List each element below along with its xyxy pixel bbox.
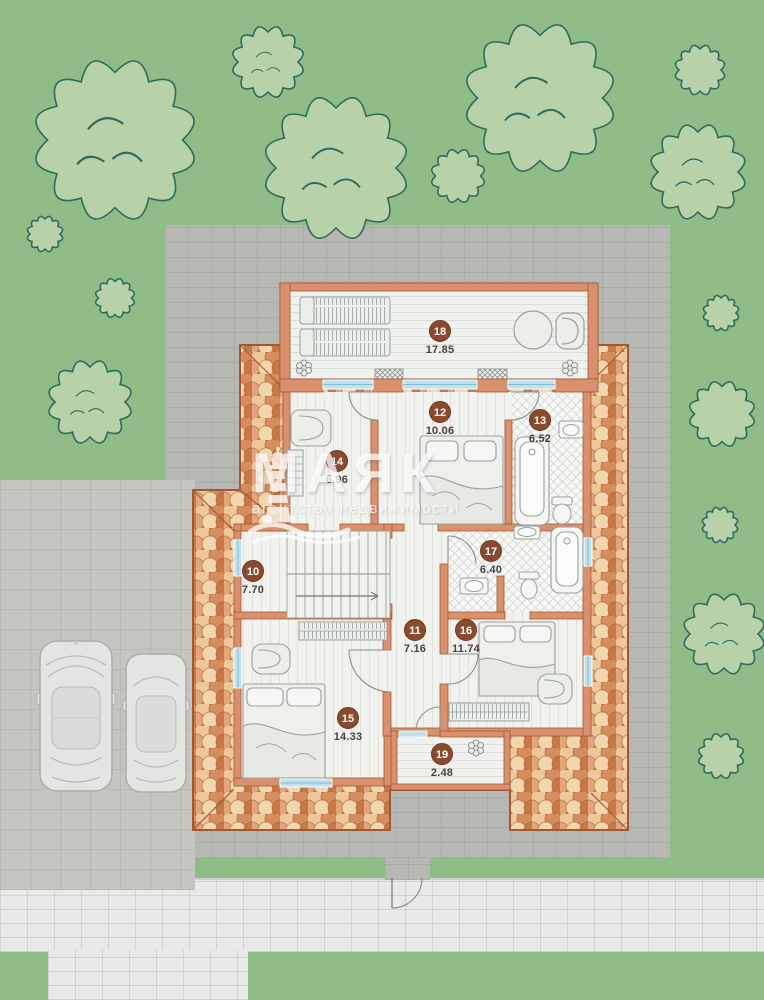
site-plan: 18 17.85 12 10.06 13 6.52 14 6.96 10 7.7… [0,0,764,1000]
plan-graphics [0,0,764,1000]
room-number-badge: 15 [337,707,359,729]
room-area: 2.48 [407,767,477,779]
toilet [552,497,572,524]
room-label-19: 19 2.48 [407,743,477,779]
sink [514,526,540,539]
car-large [37,641,115,791]
room-number-badge: 11 [404,619,426,641]
room-number-badge: 16 [455,619,477,641]
gate-door [392,878,422,908]
room-area: 6.52 [505,433,575,445]
round-table [514,311,552,349]
room-area: 7.70 [218,584,288,596]
car-small [123,654,189,792]
bathtub [551,527,583,593]
terrace-chair [556,313,584,349]
room-number-badge: 13 [529,409,551,431]
room-label-15: 15 14.33 [313,707,383,743]
room-label-14: 14 6.96 [302,450,372,486]
room-area: 6.96 [302,474,372,486]
bed [420,436,503,524]
sink [460,578,488,594]
armchair [538,674,572,704]
room-area: 17.85 [405,344,475,356]
toilet [519,572,539,599]
wardrobe [449,703,529,721]
room-number-badge: 14 [326,450,348,472]
room-label-17: 17 6.40 [456,540,526,576]
wardrobe [299,622,387,640]
room-area: 6.40 [456,564,526,576]
room-label-10: 10 7.70 [218,560,288,596]
room-label-18: 18 17.85 [405,320,475,356]
vent-grille [375,369,403,379]
bathtub [515,437,549,525]
armchair [252,644,290,674]
room-area: 11.74 [431,643,501,655]
room-number-badge: 12 [429,401,451,423]
room-label-13: 13 6.52 [505,409,575,445]
room-number-badge: 18 [429,320,451,342]
room-number-badge: 19 [431,743,453,765]
vent-grille [478,369,507,379]
room-number-badge: 10 [242,560,264,582]
room-area: 14.33 [313,731,383,743]
room-number-badge: 17 [480,540,502,562]
room-label-16: 16 11.74 [431,619,501,655]
staircase [287,531,390,618]
room-area: 10.06 [405,425,475,437]
room-label-12: 12 10.06 [405,401,475,437]
